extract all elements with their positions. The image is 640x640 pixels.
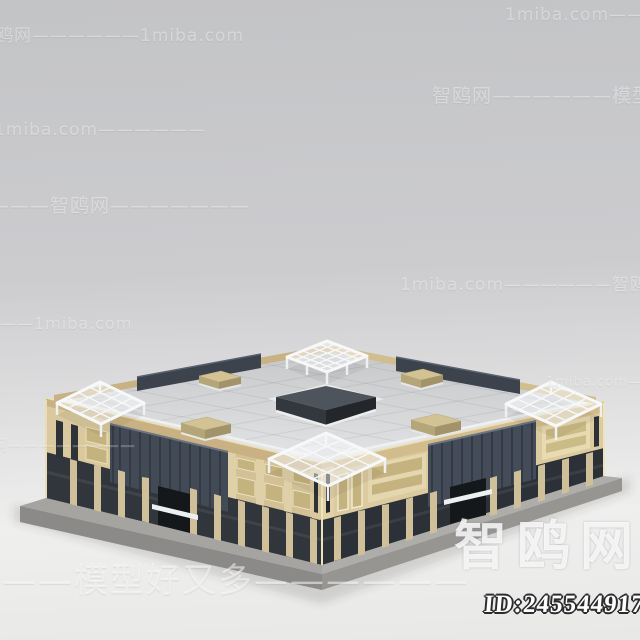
model-preview-image: 1miba.com—————— 智鸥网——————1miba.com 智鸥网——… bbox=[0, 0, 640, 640]
model-id-label: ID:245544917 bbox=[483, 591, 640, 619]
watermark-brand-large: 智鸥网 bbox=[454, 518, 640, 576]
